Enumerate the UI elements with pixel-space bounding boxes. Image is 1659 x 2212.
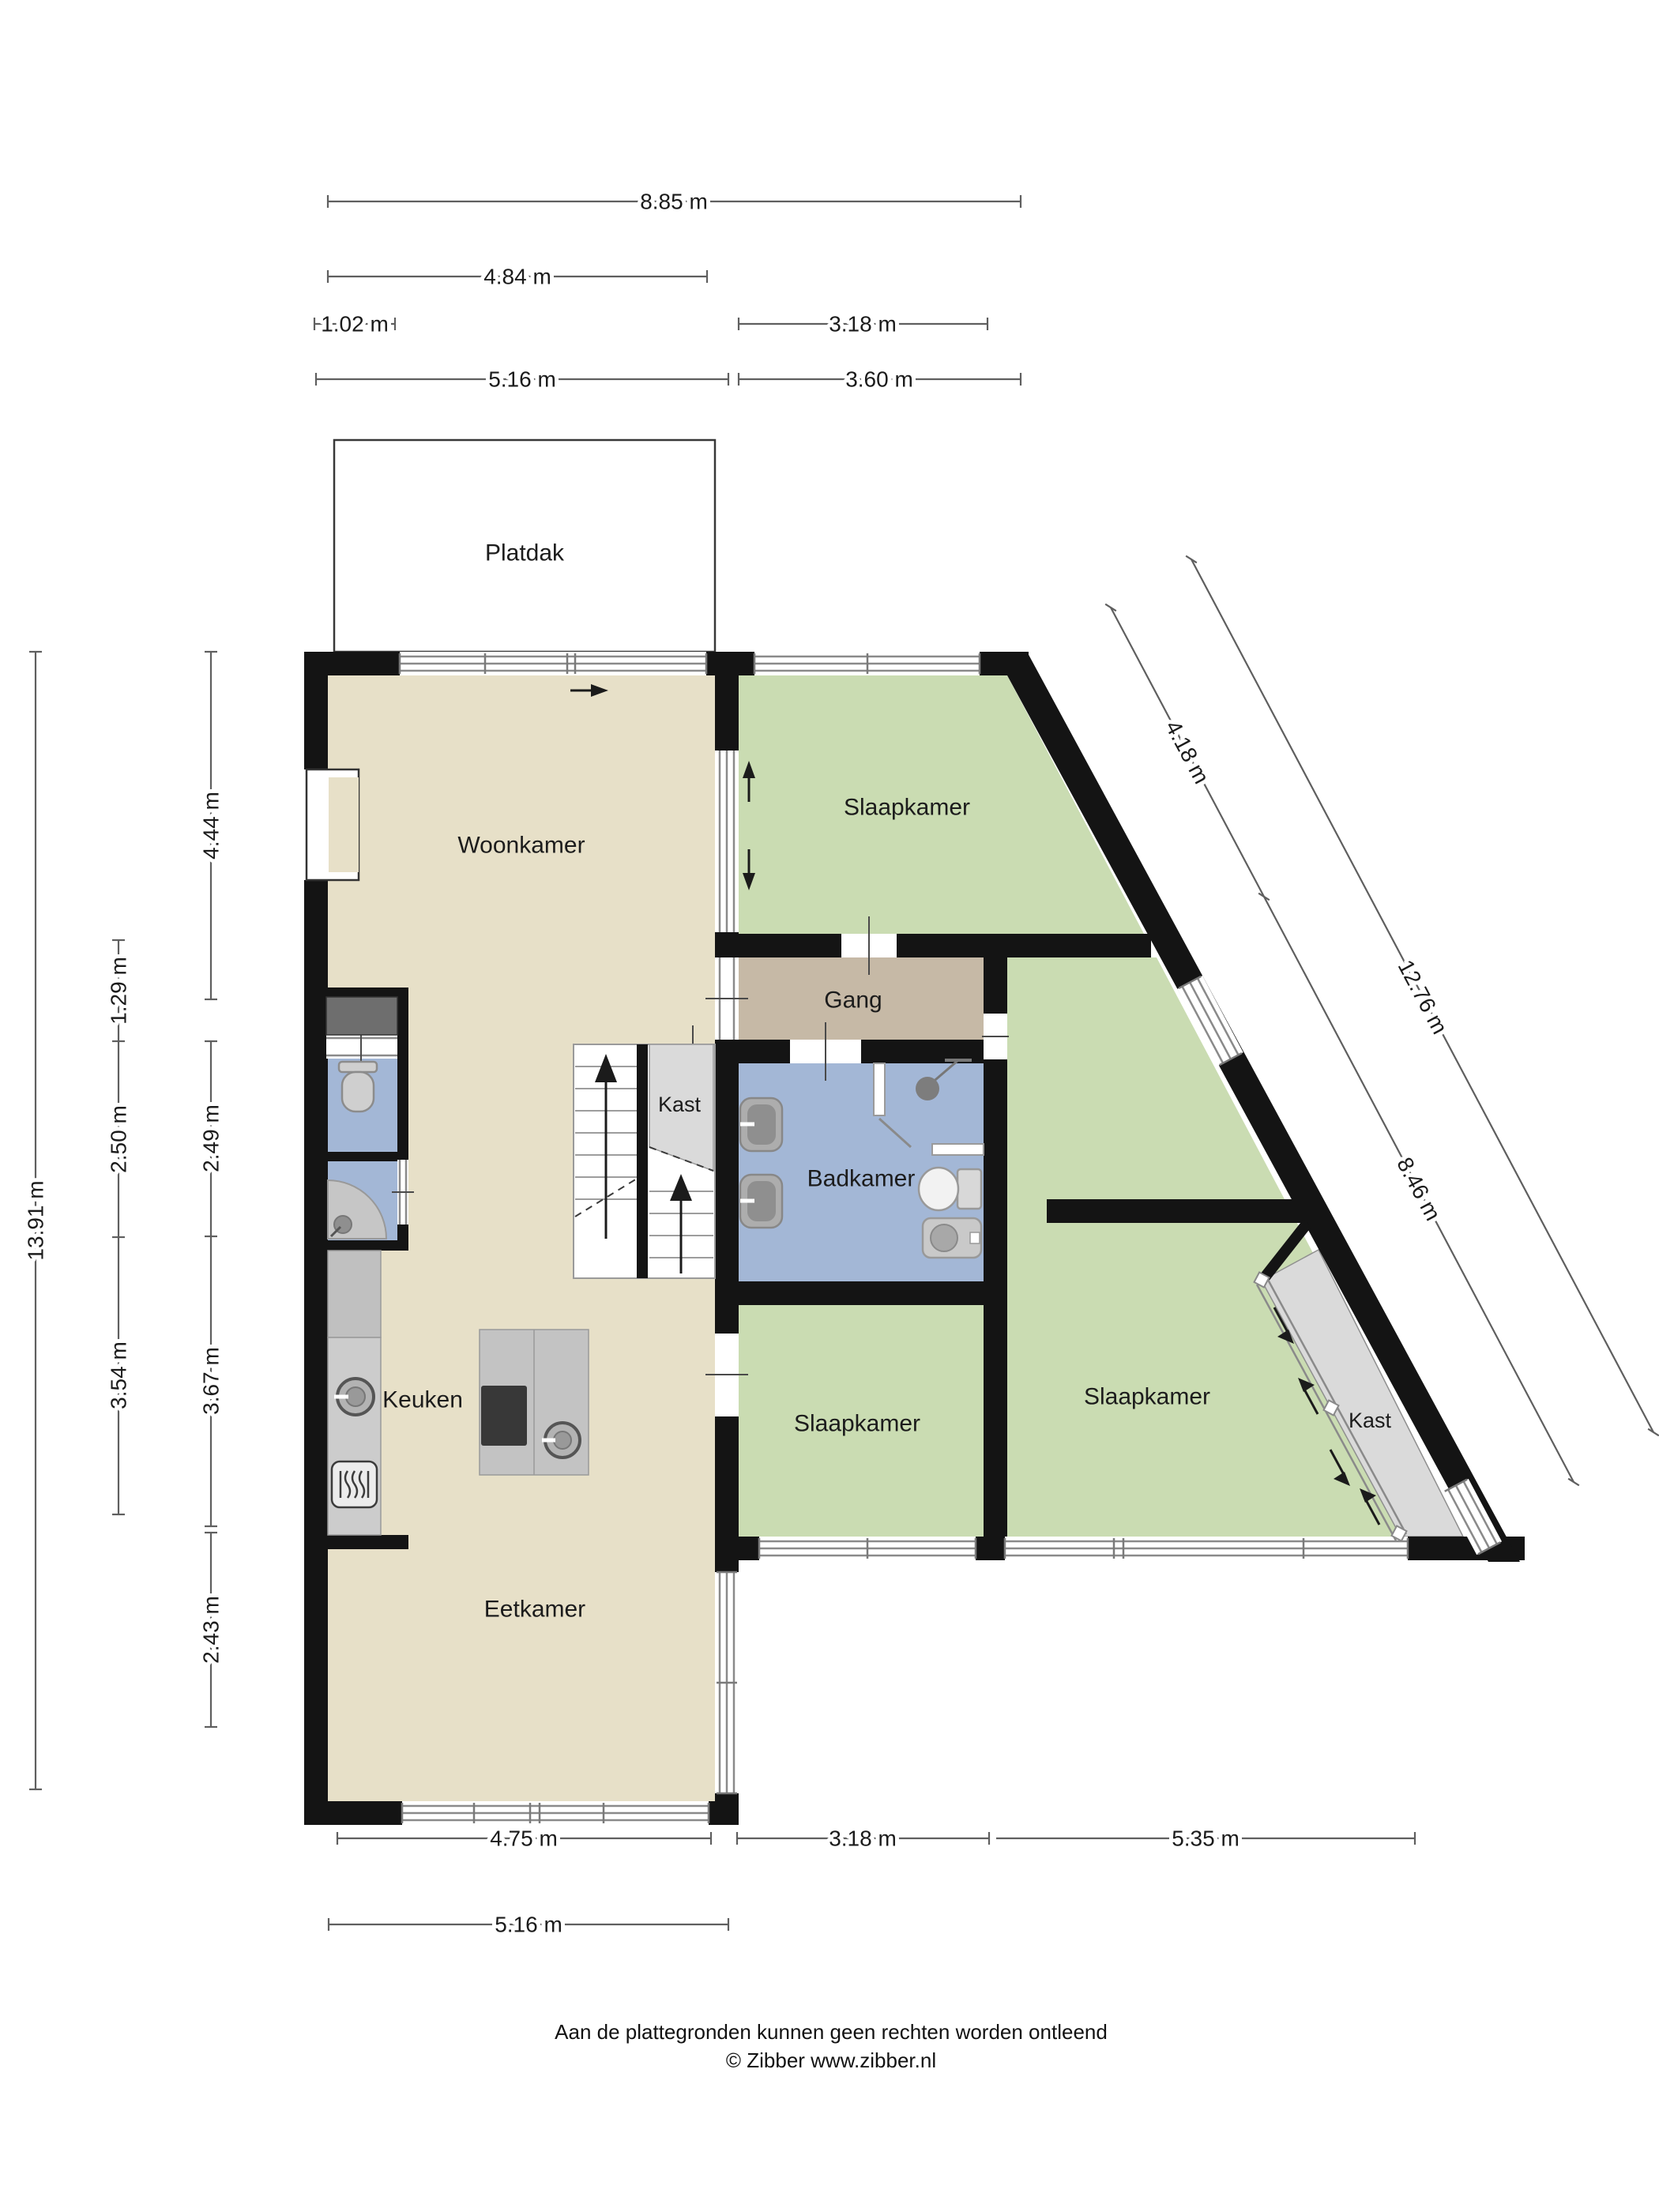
dimension-top-total: 8.85 m <box>328 190 1021 214</box>
window-icon <box>754 652 980 675</box>
dimension-top-516: 5.16 m <box>316 367 728 392</box>
room-label-platdak: Platdak <box>485 540 565 566</box>
oven-icon <box>332 1461 377 1507</box>
room-label-gang: Gang <box>824 987 882 1014</box>
dimension-left-367: 3.67 m <box>199 1236 224 1526</box>
room-label-keuken: Keuken <box>382 1387 463 1413</box>
dimension-bottom-535: 5.35 m <box>996 1826 1415 1851</box>
wall-niche <box>307 769 359 880</box>
dimension-bottom-318: 3.18 m <box>737 1826 989 1851</box>
room-label-slaapkamer-bottom: Slaapkamer <box>794 1411 920 1437</box>
bidet-icon <box>923 1218 981 1258</box>
dim-label: 1.02 m <box>321 312 389 337</box>
dim-label: 5.35 m <box>1172 1826 1240 1851</box>
dim-label: 13.91 m <box>24 1180 48 1260</box>
dim-label: 3.67 m <box>199 1347 224 1415</box>
floor-plan: 8.85 m 4.84 m 1.02 m 3.18 m 5.16 m 3.60 … <box>0 0 1659 2212</box>
toilet-icon <box>339 1062 377 1112</box>
window-icon <box>759 1537 976 1560</box>
toilet-icon <box>919 1168 981 1210</box>
dimension-left-249: 2.49 m <box>199 1041 224 1236</box>
dimension-bottom-475: 4.75 m <box>337 1826 711 1851</box>
window-icon <box>715 1572 739 1793</box>
dimension-lines-left: 13.91 m 1.29 m 2.50 m 3.54 m 4.44 m 2.49… <box>24 652 224 1789</box>
dim-label: 5.16 m <box>488 367 556 392</box>
room-label-slaapkamer-right: Slaapkamer <box>1084 1384 1210 1410</box>
dim-label: 2.49 m <box>199 1104 224 1172</box>
dimension-bottom-516: 5.16 m <box>329 1913 728 1937</box>
dimension-left-250: 2.50 m <box>107 1041 131 1237</box>
dim-label: 1.29 m <box>107 957 131 1025</box>
dim-label: 4.18 m <box>1161 717 1214 788</box>
window-icon <box>402 1801 709 1825</box>
dim-label: 3.18 m <box>829 312 897 337</box>
dim-label: 3.18 m <box>829 1826 897 1851</box>
dimension-lines-bottom: 4.75 m 3.18 m 5.35 m 5.16 m <box>329 1826 1415 1937</box>
room-label-woonkamer: Woonkamer <box>457 833 585 859</box>
dimension-left-444: 4.44 m <box>199 652 224 999</box>
dim-label: 2.50 m <box>107 1105 131 1173</box>
dim-label: 8.46 m <box>1392 1153 1446 1224</box>
dimension-left-354: 3.54 m <box>107 1237 131 1514</box>
room-label-eetkamer: Eetkamer <box>484 1597 585 1623</box>
footer-credit: © Zibber www.zibber.nl <box>726 2048 936 2072</box>
dim-label: 5.16 m <box>495 1913 562 1937</box>
room-label-kast-right: Kast <box>1349 1409 1392 1432</box>
dim-label: 4.75 m <box>490 1826 558 1851</box>
room-label-badkamer: Badkamer <box>807 1166 916 1192</box>
dim-label: 4.84 m <box>483 265 551 289</box>
window-icon <box>1005 1537 1408 1560</box>
dimension-top-318: 3.18 m <box>739 312 987 337</box>
dimension-top-360: 3.60 m <box>739 367 1021 392</box>
dimension-left-total: 13.91 m <box>24 652 48 1789</box>
meter-cabinet <box>326 997 397 1035</box>
sink-icon <box>740 1175 782 1228</box>
platdak-area: Platdak <box>334 440 715 652</box>
footer: Aan de plattegronden kunnen geen rechten… <box>555 2020 1108 2072</box>
dimension-lines-top: 8.85 m 4.84 m 1.02 m 3.18 m 5.16 m 3.60 … <box>314 190 1021 392</box>
dimension-left-129: 1.29 m <box>107 940 131 1041</box>
room-label-slaapkamer-top: Slaapkamer <box>844 795 970 821</box>
dim-label: 4.44 m <box>199 792 224 860</box>
cooktop-icon <box>481 1386 527 1446</box>
kitchen-island <box>480 1330 589 1475</box>
dim-label: 3.60 m <box>845 367 913 392</box>
dim-label: 12.76 m <box>1394 956 1453 1038</box>
room-label-kast-mid: Kast <box>658 1093 702 1116</box>
dim-label: 8.85 m <box>640 190 708 214</box>
partial-wall <box>1047 1199 1313 1223</box>
kitchen-counter <box>328 1251 381 1337</box>
door-opening-icon <box>982 1014 1009 1059</box>
dimension-top-484: 4.84 m <box>328 265 707 289</box>
sink-icon <box>740 1098 782 1151</box>
dim-label: 3.54 m <box>107 1341 131 1409</box>
dim-label: 2.43 m <box>199 1596 224 1664</box>
dimension-left-243: 2.43 m <box>199 1533 224 1727</box>
dimension-top-102: 1.02 m <box>314 312 395 337</box>
footer-disclaimer: Aan de plattegronden kunnen geen rechten… <box>555 2020 1108 2044</box>
staircase <box>574 1044 715 1278</box>
